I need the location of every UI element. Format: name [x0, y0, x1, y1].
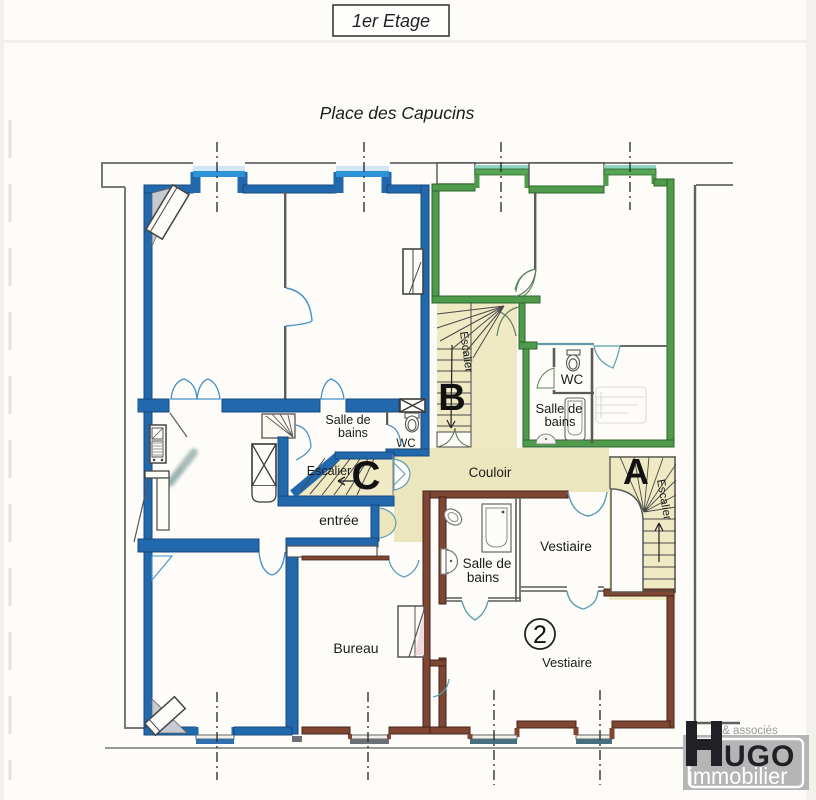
svg-text:Vestiaire: Vestiaire — [542, 655, 592, 670]
svg-text:bains: bains — [544, 414, 576, 429]
svg-text:Salle de: Salle de — [463, 556, 512, 571]
svg-text:1er Etage: 1er Etage — [352, 11, 430, 31]
svg-text:2: 2 — [533, 621, 547, 649]
svg-text:WC: WC — [561, 372, 584, 387]
svg-text:Couloir: Couloir — [469, 465, 512, 480]
svg-text:C: C — [352, 454, 381, 498]
svg-text:& associés: & associés — [722, 725, 778, 737]
svg-text:Salle de: Salle de — [325, 413, 370, 427]
svg-text:Escalier: Escalier — [307, 464, 351, 478]
svg-text:bains: bains — [338, 426, 368, 440]
svg-text:WC: WC — [396, 438, 415, 450]
svg-text:immobilier: immobilier — [688, 762, 788, 789]
svg-text:entrée: entrée — [319, 512, 359, 528]
svg-text:A: A — [623, 451, 649, 492]
svg-text:bains: bains — [467, 570, 500, 585]
svg-text:Place des Capucins: Place des Capucins — [320, 103, 475, 123]
svg-text:Bureau: Bureau — [333, 640, 378, 656]
svg-text:Vestiaire: Vestiaire — [540, 539, 592, 554]
svg-text:B: B — [438, 377, 465, 419]
